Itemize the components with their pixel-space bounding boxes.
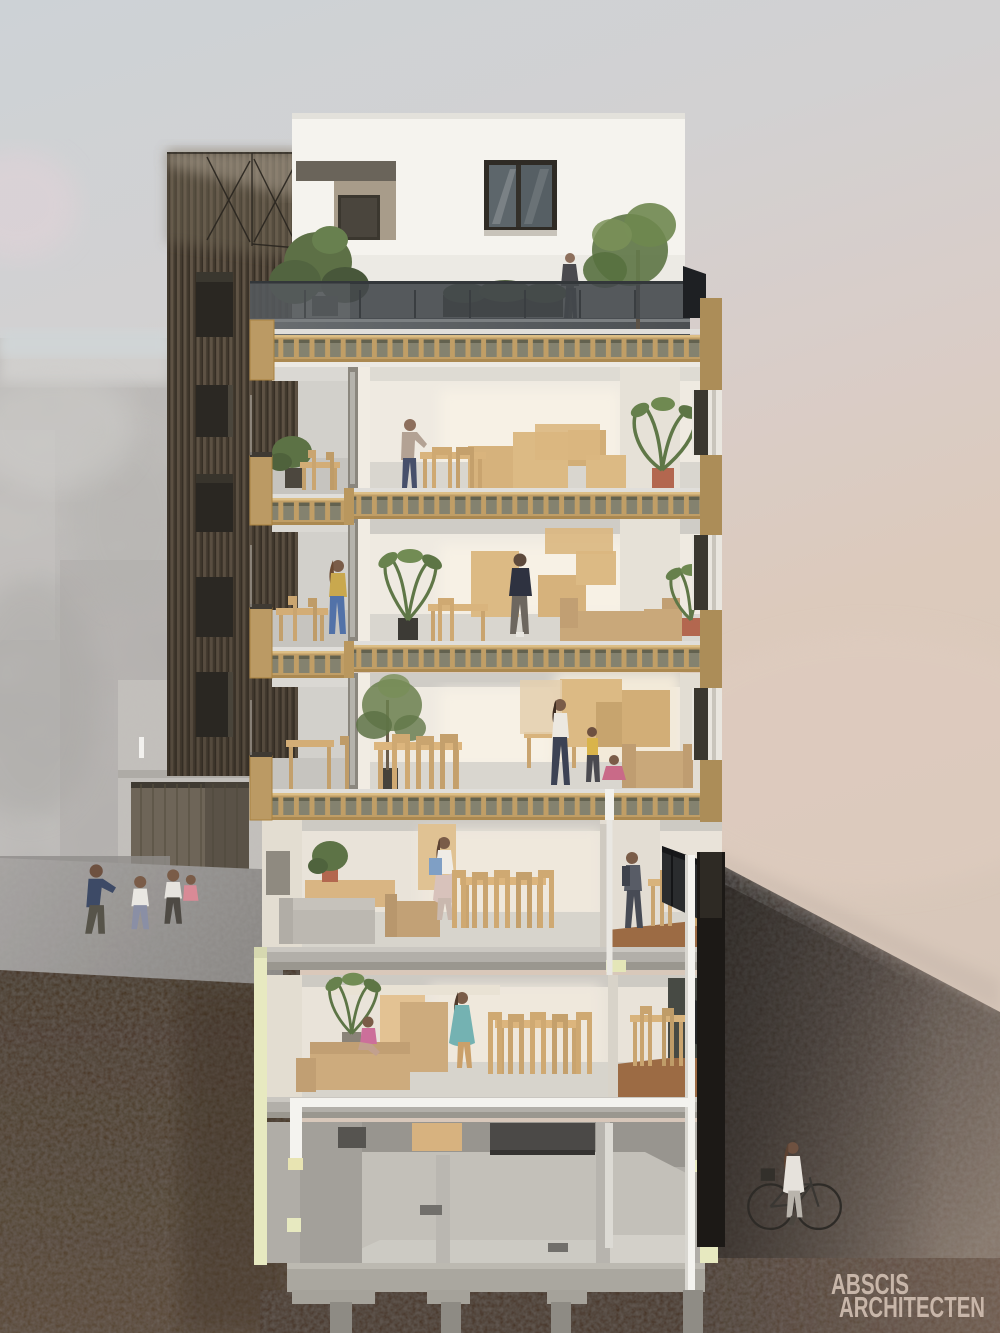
svg-text:ARCHITECTEN: ARCHITECTEN bbox=[839, 1292, 985, 1324]
